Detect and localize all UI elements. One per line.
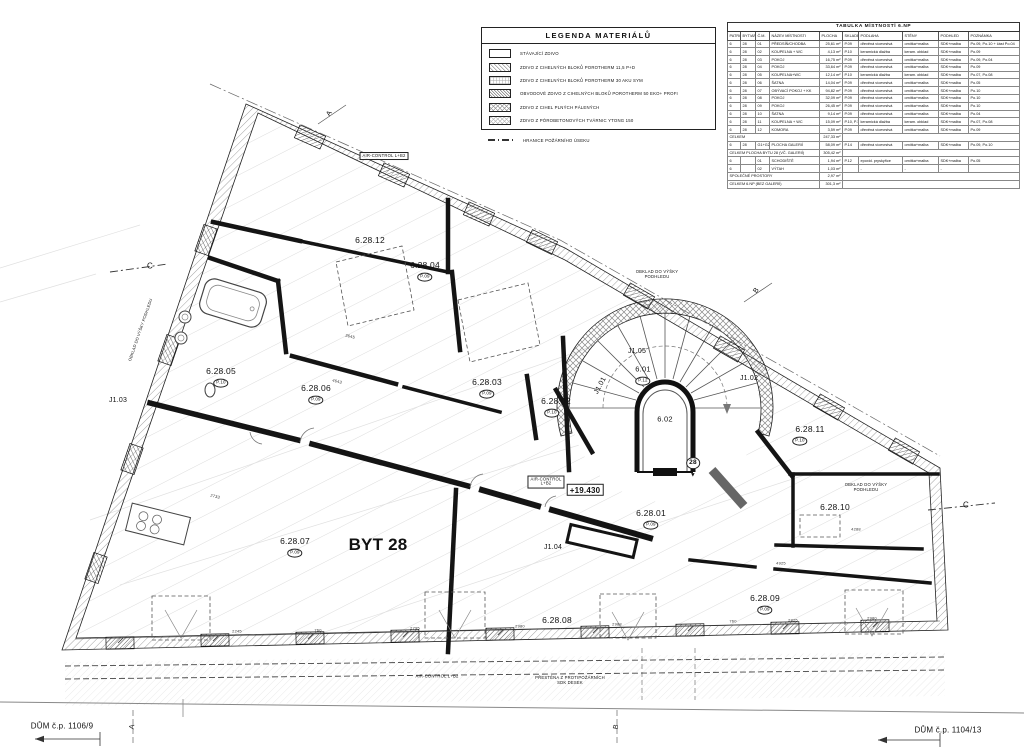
legend-swatch-cross2 xyxy=(489,116,511,125)
table-cell: 6 xyxy=(728,48,741,56)
table-cell: SDK+malba xyxy=(939,40,969,48)
table-cell: 16,75 m² xyxy=(820,56,843,64)
table-cell: 6 xyxy=(728,71,741,79)
table-cell: KOUPELNA + WC xyxy=(770,48,820,56)
table-cell xyxy=(843,180,1020,188)
legend-item: ZDIVO Z PÓROBETONOVÝCH TVÁRNIC YTONG 150 xyxy=(489,114,708,127)
legend-item-label: ZDIVO Z CIHELNÝCH BLOKŮ POROTHERM 11,5 P… xyxy=(520,65,635,70)
table-cell: omítka+malba xyxy=(903,157,939,165)
table-cell: 01 xyxy=(756,40,770,48)
table-cell: dřevěná vícevrstvá xyxy=(859,110,903,118)
table-cell: 28 xyxy=(741,141,756,149)
sidewalk-strip xyxy=(65,652,945,706)
table-cell: PLOCHA xyxy=(820,32,843,41)
table-row: 62812KOMORA3,59 m²P.09dřevěná vícevrstvá… xyxy=(728,126,1020,134)
table-cell: SDK+malba xyxy=(939,63,969,71)
legend-item: ZDIVO Z CIHELNÝCH BLOKŮ POROTHERM 11,5 P… xyxy=(489,60,708,73)
table-cell: 6 xyxy=(728,56,741,64)
table-cell: keram. obklad xyxy=(903,48,939,56)
table-cell: VÝTAH xyxy=(770,165,820,173)
table-cell: dřevěná vícevrstvá xyxy=(859,56,903,64)
table-cell: 03 xyxy=(756,56,770,64)
table-cell: 01 xyxy=(756,157,770,165)
table-cell: keramická dlažba xyxy=(859,48,903,56)
table-cell: SDK+malba xyxy=(939,95,969,103)
table-row: 62808POKOJ32,09 m²P.09dřevěná vícevrstvá… xyxy=(728,95,1020,103)
legend-item: STÁVAJÍCÍ ZDIVO xyxy=(489,47,708,60)
table-cell: 28 xyxy=(741,87,756,95)
table-cell: 04 xyxy=(756,63,770,71)
table-cell: 11 xyxy=(756,118,770,126)
table-cell: 28 xyxy=(741,110,756,118)
legend-item: HRANICE POŽÁRNÍHO ÚSEKU xyxy=(488,133,709,146)
table-cell: 2,97 m² xyxy=(820,173,843,181)
table-cell xyxy=(843,173,1020,181)
legend-swatch-cross xyxy=(489,103,511,112)
table-cell: PŘEDSÍŇ/CHODBA xyxy=(770,40,820,48)
table-cell: Po.07, Po.08 xyxy=(969,118,1020,126)
table-cell: POKOJ xyxy=(770,95,820,103)
table-cell: Po.04 xyxy=(969,110,1020,118)
legend-item-label: STÁVAJÍCÍ ZDIVO xyxy=(520,51,559,56)
legend-item-label: HRANICE POŽÁRNÍHO ÚSEKU xyxy=(523,138,590,143)
table-cell: 301,3 m² xyxy=(820,180,843,188)
table-cell: NÁZEV MÍSTNOSTI xyxy=(770,32,820,41)
table-cell: PODHLED xyxy=(939,32,969,41)
table-cell: 6 xyxy=(728,63,741,71)
table-cell: keramická dlažba xyxy=(859,71,903,79)
table-row: 62806ŠATNA14,04 m²P.09dřevěná vícevrstvá… xyxy=(728,79,1020,87)
table-cell: KOUPELNA+WC xyxy=(770,71,820,79)
table-cell: SDK+malba xyxy=(939,56,969,64)
legend-item-label: ZDIVO Z PÓROBETONOVÝCH TVÁRNIC YTONG 150 xyxy=(520,118,633,123)
table-cell: 09 xyxy=(756,102,770,110)
table-cell: dřevěná vícevrstvá xyxy=(859,126,903,134)
table-cell: keram. obklad xyxy=(903,71,939,79)
table-cell: SDK+malba xyxy=(939,141,969,149)
table-row: 601SCHODIŠTĚ1,94 m²P.12epoxid. pryskyřic… xyxy=(728,157,1020,165)
table-cell: Po.09, Po.10 xyxy=(969,141,1020,149)
table-cell: PODLAHA xyxy=(859,32,903,41)
table-cell xyxy=(843,149,1020,157)
drawing-sheet: 6.28.126.28.04P.096.28.05P.106.28.06P.09… xyxy=(0,0,1024,750)
legend-item-label: ZDIVO Z CIHEL PLNÝCH PÁLENÝCH xyxy=(520,105,599,110)
table-cell: 9,14 m² xyxy=(820,110,843,118)
legend-swatch-dashline xyxy=(488,139,514,141)
table-cell: omítka+malba xyxy=(903,79,939,87)
table-cell: P.09 xyxy=(843,95,859,103)
table-cell: G1+G2 xyxy=(756,141,770,149)
table-cell: omítka+malba xyxy=(903,87,939,95)
table-cell: keramická dlažba xyxy=(859,118,903,126)
toilet xyxy=(205,383,215,397)
table-cell: SDK+malba xyxy=(939,157,969,165)
table-cell: PATRO xyxy=(728,32,741,41)
table-cell: P.12 xyxy=(843,157,859,165)
table-cell: 08 xyxy=(756,95,770,103)
table-cell: 6 xyxy=(728,95,741,103)
table-cell xyxy=(741,165,756,173)
table-cell: 6 xyxy=(728,110,741,118)
table-cell: omítka+malba xyxy=(903,63,939,71)
table-cell: SDK+malba xyxy=(939,71,969,79)
table-total-row: CELKEM247,33 m² xyxy=(728,134,1020,142)
table-cell: CELKEM xyxy=(728,134,820,142)
table-row: 62803POKOJ16,75 m²P.09dřevěná vícevrstvá… xyxy=(728,56,1020,64)
table-cell: SPOLEČNÉ PROSTORY xyxy=(728,173,820,181)
table-cell: SDK+malba xyxy=(939,102,969,110)
legend-swatch-grid xyxy=(489,76,511,85)
table-cell: Po.09 xyxy=(969,126,1020,134)
table-cell: omítka+malba xyxy=(903,40,939,48)
table-cell: P.10 xyxy=(843,71,859,79)
table-cell: Po.05 xyxy=(969,79,1020,87)
table-cell: omítka+malba xyxy=(903,56,939,64)
table-cell: Po.09 xyxy=(969,48,1020,56)
table-cell: SDK+malba xyxy=(939,79,969,87)
table-cell: - xyxy=(859,165,903,173)
table-cell: 28 xyxy=(741,48,756,56)
table-cell: PLOCHA GALERIÍ xyxy=(770,141,820,149)
table-cell: KOMORA xyxy=(770,126,820,134)
table-cell: dřevěná vícevrstvá xyxy=(859,95,903,103)
table-cell: 26,45 m² xyxy=(820,102,843,110)
legend-item: ZDIVO Z CIHEL PLNÝCH PÁLENÝCH xyxy=(489,101,708,114)
table-row: 62807OBÝVACÍ POKOJ + KK94,82 m²P.09dřevě… xyxy=(728,87,1020,95)
sheet-lines xyxy=(0,699,1024,747)
table-cell: Po.10 xyxy=(969,102,1020,110)
table-cell: 07 xyxy=(756,87,770,95)
table-total-row: SPOLEČNÉ PROSTORY2,97 m² xyxy=(728,173,1020,181)
table-cell xyxy=(969,165,1020,173)
legend-item: ZDIVO Z CIHELNÝCH BLOKŮ POROTHERM 30 AKU… xyxy=(489,74,708,87)
table-row: 62805KOUPELNA+WC12,14 m²P.10keramická dl… xyxy=(728,71,1020,79)
table-row: 62811KOUPELNA + WC15,09 m²P.10, P.15kera… xyxy=(728,118,1020,126)
table-cell: SDK+malba xyxy=(939,48,969,56)
table-cell xyxy=(741,157,756,165)
table-cell: P.09 xyxy=(843,63,859,71)
table-cell: Po.09, Po.04 xyxy=(969,56,1020,64)
table-cell: 6 xyxy=(728,118,741,126)
table-cell: omítka+malba xyxy=(903,110,939,118)
table-cell: SCHODIŠTĚ xyxy=(770,157,820,165)
table-cell: TABULKA MÍSTNOSTÍ 6.NP xyxy=(728,23,1020,32)
table-cell: P.09 xyxy=(843,56,859,64)
table-cell: keram. obklad xyxy=(903,118,939,126)
table-cell: 305,42 m² xyxy=(820,149,843,157)
table-cell: 12 xyxy=(756,126,770,134)
table-cell: POKOJ xyxy=(770,102,820,110)
table-cell: SDK+malba xyxy=(939,87,969,95)
table-row: 602VÝTAH1,03 m²--- xyxy=(728,165,1020,173)
table-cell: SDK+malba xyxy=(939,110,969,118)
table-cell: 28 xyxy=(741,40,756,48)
table-cell: POKOJ xyxy=(770,63,820,71)
table-cell: CELKEM PLOCHA BYTU 28 (VČ. GALERIÍ) xyxy=(728,149,820,157)
table-cell: 6 xyxy=(728,87,741,95)
table-cell: 94,82 m² xyxy=(820,87,843,95)
table-total-row: CELKEM 6.NP (BEZ GALERIÍ)301,3 m² xyxy=(728,180,1020,188)
table-cell: 28 xyxy=(741,95,756,103)
table-cell: 58,09 m² xyxy=(820,141,843,149)
table-cell: POZNÁMKA xyxy=(969,32,1020,41)
table-cell: 25,61 m² xyxy=(820,40,843,48)
table-row: 62801PŘEDSÍŇ/CHODBA25,61 m²P.09dřevěná v… xyxy=(728,40,1020,48)
table-cell: POKOJ xyxy=(770,56,820,64)
table-cell: dřevěná vícevrstvá xyxy=(859,40,903,48)
table-cell: ŠATNA xyxy=(770,79,820,87)
table-cell: 3,59 m² xyxy=(820,126,843,134)
table-cell: 12,14 m² xyxy=(820,71,843,79)
table-cell: 6 xyxy=(728,126,741,134)
table-cell xyxy=(843,165,859,173)
table-cell: ŠATNA xyxy=(770,110,820,118)
table-cell: Po.10 xyxy=(969,95,1020,103)
table-cell: 6 xyxy=(728,141,741,149)
table-cell: dřevěná vícevrstvá xyxy=(859,87,903,95)
table-cell: omítka+malba xyxy=(903,95,939,103)
table-cell xyxy=(843,134,1020,142)
table-cell: 28 xyxy=(741,118,756,126)
table-cell: 02 xyxy=(756,48,770,56)
table-cell: 28 xyxy=(741,56,756,64)
table-cell: P.14 xyxy=(843,141,859,149)
table-cell: 28 xyxy=(741,63,756,71)
table-cell: P.09 xyxy=(843,87,859,95)
legend-item: OBVODOVÉ ZDIVO Z CIHELNÝCH BLOKŮ POROTHE… xyxy=(489,87,708,100)
table-cell: P.09 xyxy=(843,126,859,134)
table-cell: OBÝVACÍ POKOJ + KK xyxy=(770,87,820,95)
table-cell: 1,94 m² xyxy=(820,157,843,165)
table-cell: 6 xyxy=(728,157,741,165)
table-cell: 33,64 m² xyxy=(820,63,843,71)
table-cell: dřevěná vícevrstvá xyxy=(859,79,903,87)
table-cell: 10 xyxy=(756,110,770,118)
elevator xyxy=(637,382,693,476)
table-cell: 6 xyxy=(728,102,741,110)
table-cell: 4,13 m² xyxy=(820,48,843,56)
table-cell: P.09 xyxy=(843,79,859,87)
table-cell: 06 xyxy=(756,79,770,87)
room-table: TABULKA MÍSTNOSTÍ 6.NPPATROBYT/APČ.M.NÁZ… xyxy=(727,22,1020,189)
table-cell: 28 xyxy=(741,71,756,79)
table-cell: 6 xyxy=(728,165,741,173)
legend: LEGENDA MATERIÁLŮ STÁVAJÍCÍ ZDIVOZDIVO Z… xyxy=(481,27,716,147)
table-cell: Po.05 xyxy=(969,157,1020,165)
table-cell: Po.09, Po.10 + část Po.04 xyxy=(969,40,1020,48)
table-cell: dřevěná vícevrstvá xyxy=(859,102,903,110)
table-cell: Po.10 xyxy=(969,87,1020,95)
table-cell: dřevěná vícevrstvá xyxy=(859,141,903,149)
table-cell: 28 xyxy=(741,126,756,134)
table-cell: 28 xyxy=(741,102,756,110)
table-cell: STĚNY xyxy=(903,32,939,41)
table-cell: 32,09 m² xyxy=(820,95,843,103)
table-row: 62802KOUPELNA + WC4,13 m²P.10keramická d… xyxy=(728,48,1020,56)
table-cell: omítka+malba xyxy=(903,141,939,149)
table-cell: Po.09 xyxy=(969,63,1020,71)
table-cell: P.09 xyxy=(843,102,859,110)
legend-item-label: ZDIVO Z CIHELNÝCH BLOKŮ POROTHERM 30 AKU… xyxy=(520,78,643,83)
table-cell: 6 xyxy=(728,40,741,48)
table-cell: 28 xyxy=(741,79,756,87)
table-cell: omítka+malba xyxy=(903,126,939,134)
table-row: 62804POKOJ33,64 m²P.09dřevěná vícevrstvá… xyxy=(728,63,1020,71)
table-cell: - xyxy=(939,165,969,173)
legend-swatch-plain xyxy=(489,49,511,58)
table-cell: P.10 xyxy=(843,48,859,56)
table-cell: epoxid. pryskyřice xyxy=(859,157,903,165)
table-cell: CELKEM 6.NP (BEZ GALERIÍ) xyxy=(728,180,820,188)
table-row: 62809POKOJ26,45 m²P.09dřevěná vícevrstvá… xyxy=(728,102,1020,110)
table-cell: 02 xyxy=(756,165,770,173)
table-cell: KOUPELNA + WC xyxy=(770,118,820,126)
legend-title: LEGENDA MATERIÁLŮ xyxy=(481,27,716,44)
legend-item-label: OBVODOVÉ ZDIVO Z CIHELNÝCH BLOKŮ POROTHE… xyxy=(520,91,678,96)
table-row: 628G1+G2PLOCHA GALERIÍ58,09 m²P.14dřevěn… xyxy=(728,141,1020,149)
table-cell: Č.M. xyxy=(756,32,770,41)
table-cell: - xyxy=(903,165,939,173)
table-cell: 14,04 m² xyxy=(820,79,843,87)
table-cell: 247,33 m² xyxy=(820,134,843,142)
legend-extra-row: HRANICE POŽÁRNÍHO ÚSEKU xyxy=(481,130,716,146)
table-cell: P.10, P.15 xyxy=(843,118,859,126)
table-cell: 1,03 m² xyxy=(820,165,843,173)
table-row: 62810ŠATNA9,14 m²P.09dřevěná vícevrstváo… xyxy=(728,110,1020,118)
table-header-row: PATROBYT/APČ.M.NÁZEV MÍSTNOSTIPLOCHASKLA… xyxy=(728,32,1020,41)
table-cell: P.09 xyxy=(843,40,859,48)
table-cell: 6 xyxy=(728,79,741,87)
table-cell: SDK+malba xyxy=(939,118,969,126)
table-cell: omítka+malba xyxy=(903,102,939,110)
table-title-row: TABULKA MÍSTNOSTÍ 6.NP xyxy=(728,23,1020,32)
table-cell: P.09 xyxy=(843,110,859,118)
table-cell: SKLADBA xyxy=(843,32,859,41)
table-total-row: CELKEM PLOCHA BYTU 28 (VČ. GALERIÍ)305,4… xyxy=(728,149,1020,157)
legend-rows: STÁVAJÍCÍ ZDIVOZDIVO Z CIHELNÝCH BLOKŮ P… xyxy=(481,44,716,130)
legend-swatch-hatch xyxy=(489,63,511,72)
table-cell: dřevěná vícevrstvá xyxy=(859,63,903,71)
table-cell: Po.07, Po.08 xyxy=(969,71,1020,79)
table-cell: 15,09 m² xyxy=(820,118,843,126)
table-cell: SDK+malba xyxy=(939,126,969,134)
legend-swatch-dense xyxy=(489,89,511,98)
table-cell: BYT/AP xyxy=(741,32,756,41)
table-cell: 05 xyxy=(756,71,770,79)
